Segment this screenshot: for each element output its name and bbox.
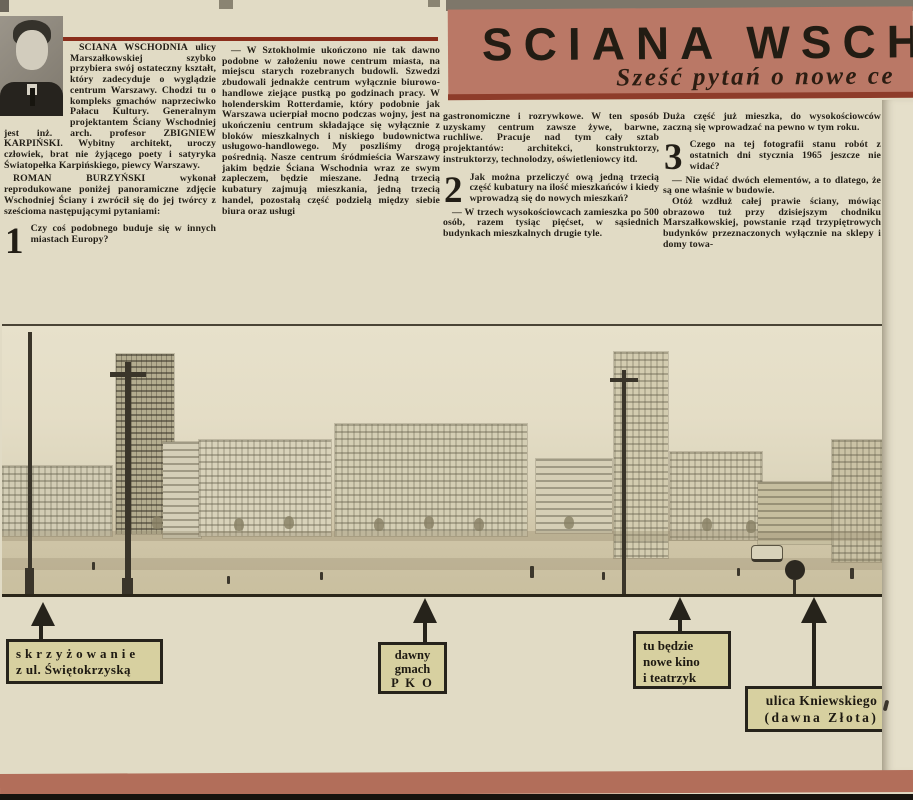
page-subtitle: Sześć pytań o nowe ce: [616, 63, 895, 93]
arrow-stem: [39, 624, 43, 640]
person: [227, 576, 230, 584]
paragraph: — W trzech wysokościowcach zamieszka po …: [443, 208, 659, 240]
building: [199, 440, 331, 536]
tree: [702, 518, 712, 531]
arrow-up-icon: [413, 598, 437, 623]
question-3: 3 Czego na tej fotografii stanu robót z …: [663, 140, 881, 172]
round-sign-icon: [785, 560, 805, 580]
bottom-color-band: [0, 770, 913, 796]
tree: [152, 516, 162, 529]
paragraph: gastronomiczne i rozrywkowe. W ten sposó…: [443, 112, 659, 166]
bottom-scan-edge: [0, 794, 913, 800]
tree: [374, 518, 384, 531]
lamppost-base: [25, 568, 34, 594]
tree: [746, 520, 756, 533]
paragraph: Otóż wzdłuż całej prawie ściany, mówiąc …: [663, 197, 881, 251]
callout-line: tu będzie: [643, 638, 721, 654]
question-1: 1 Czy coś podobnego buduje się w innych …: [4, 224, 216, 245]
column-rule: [56, 37, 438, 41]
person: [530, 566, 534, 578]
arrow-stem: [812, 622, 816, 687]
callout-box-kino: tu będzie nowe kino i teatrzyk: [633, 631, 731, 689]
paragraph: Duża część już mieszka, do wysokościowcó…: [663, 112, 881, 133]
arrow-up-icon: [669, 597, 691, 620]
page-fold-edge: [882, 100, 913, 772]
callout-box-pko: dawny gmach P K O: [378, 642, 447, 694]
tree: [284, 516, 294, 529]
person: [92, 562, 95, 570]
paragraph: — Nie widać dwóch elementów, a to dlateg…: [663, 176, 881, 197]
arrow-up-icon: [31, 602, 55, 626]
article-column-4: Duża część już mieszka, do wysokościowcó…: [663, 112, 881, 324]
callout-line: ulica Kniewskiego: [753, 692, 890, 709]
article-column-2: — W Sztokholmie ukończono nie tak dawno …: [222, 46, 440, 322]
tree: [234, 518, 244, 531]
masthead-rule: [448, 92, 913, 100]
callout-box-kniewskiego: ulica Kniewskiego (dawna Złota): [745, 686, 898, 732]
question-2: 2 Jak można przeliczyć ową jedną trzecią…: [443, 173, 659, 205]
building: [163, 442, 201, 538]
lamppost-crossarm: [110, 372, 146, 377]
lamppost-crossarm: [610, 378, 638, 382]
paragraph: — W Sztokholmie ukończono nie tak dawno …: [222, 46, 440, 217]
article-column-3: gastronomiczne i rozrywkowe. W ten sposó…: [443, 112, 659, 322]
car: [751, 545, 783, 562]
callout-line: P K O: [385, 676, 440, 690]
building: [2, 466, 112, 536]
masthead-band: SCIANA WSCHODNIA Sześć pytań o nowe ce: [448, 6, 913, 95]
callout-line: nowe kino: [643, 654, 721, 670]
lamppost: [125, 362, 131, 594]
arrow-stem: [423, 622, 427, 643]
question-number: 1: [5, 226, 24, 257]
person: [320, 572, 323, 580]
article-column-1: ŚCIANA WSCHODNIA ulicy Marszałkowskiej s…: [4, 43, 216, 323]
lamppost-base: [122, 578, 133, 594]
magazine-page: { "masthead": { "title": "SCIANA WSCHODN…: [0, 0, 913, 800]
callout-line: dawny: [385, 648, 440, 662]
panorama-photo: [2, 324, 882, 597]
callout-line: (dawna Złota): [753, 709, 890, 726]
callout-line: i teatrzyk: [643, 670, 721, 686]
callout-line: gmach: [385, 662, 440, 676]
person: [850, 568, 854, 579]
road-strip: [2, 558, 882, 570]
tree: [424, 516, 434, 529]
question-number: 2: [444, 175, 463, 206]
question-text: Czego na tej fotografii stanu robót z os…: [690, 139, 881, 171]
person: [737, 568, 740, 576]
callout-box-skrzyzowanie: skrzyżowanie z ul. Świętokrzyską: [6, 639, 163, 684]
question-number: 3: [664, 142, 683, 173]
tree: [474, 518, 484, 531]
scan-smudge: [0, 0, 9, 12]
sign-post: [793, 580, 796, 597]
tree: [564, 516, 574, 529]
building: [536, 459, 612, 533]
scan-smudge: [428, 0, 440, 7]
paragraph: ROMAN BURZYŃSKI wykonał reprodukowane po…: [4, 174, 216, 217]
building: [832, 440, 882, 562]
callout-line: skrzyżowanie: [16, 646, 153, 662]
callout-line: z ul. Świętokrzyską: [16, 662, 153, 678]
question-text: Jak można przeliczyć ową jedną trzecią c…: [470, 172, 659, 204]
scan-smudge: [219, 0, 233, 9]
question-text: Czy coś podobnego buduje się w innych mi…: [31, 223, 216, 245]
lamppost: [622, 370, 626, 594]
lamppost: [28, 332, 32, 594]
portrait-wrap-spacer: [4, 43, 70, 119]
arrow-up-icon: [801, 597, 827, 623]
person: [602, 572, 605, 580]
